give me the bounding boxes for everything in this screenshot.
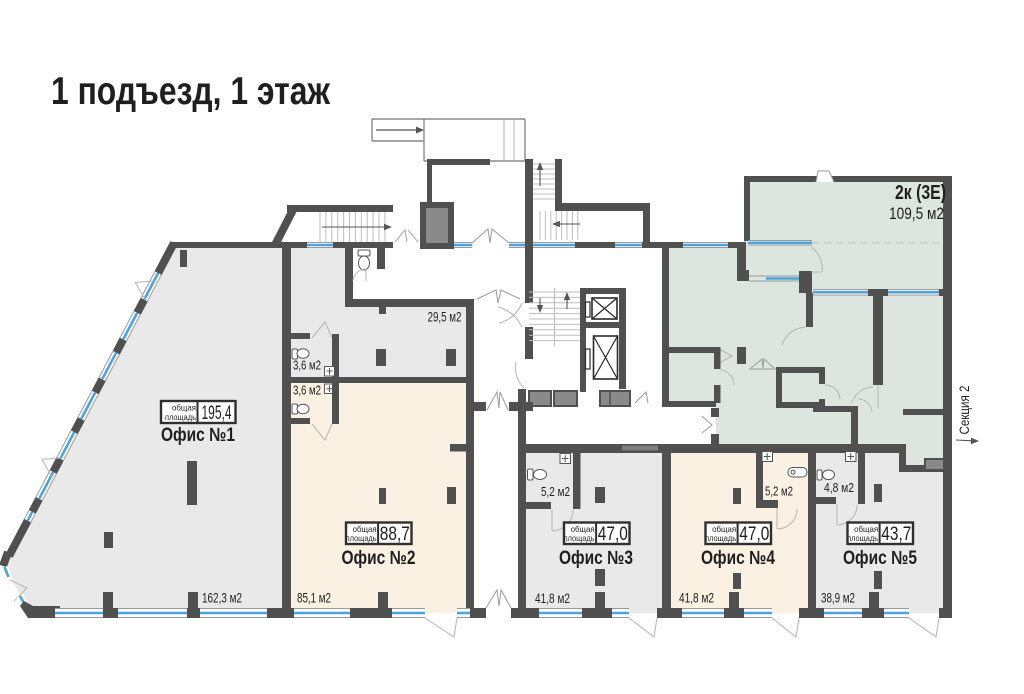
svg-text:3,6 м2: 3,6 м2: [293, 359, 321, 373]
svg-text:5,2 м2: 5,2 м2: [765, 484, 793, 499]
svg-text:площадь: площадь: [847, 533, 878, 543]
svg-text:площадь: площадь: [705, 533, 736, 543]
svg-text:Офис №4: Офис №4: [701, 548, 775, 569]
svg-text:Офис №1: Офис №1: [161, 425, 235, 446]
svg-text:41,8 м2: 41,8 м2: [535, 590, 570, 606]
svg-text:162,3 м2: 162,3 м2: [202, 590, 242, 606]
svg-text:2к (3Е): 2к (3Е): [895, 182, 946, 204]
svg-text:195,4: 195,4: [202, 403, 232, 424]
svg-text:Офис №5: Офис №5: [843, 548, 917, 569]
svg-text:5,2 м2: 5,2 м2: [541, 484, 570, 499]
svg-text:1 подъезд, 1 этаж: 1 подъезд, 1 этаж: [51, 70, 331, 113]
svg-text:85,1 м2: 85,1 м2: [297, 590, 331, 606]
svg-text:площадь: площадь: [564, 533, 595, 543]
svg-text:47,0: 47,0: [739, 524, 769, 545]
svg-text:4,8 м2: 4,8 м2: [824, 480, 854, 495]
svg-text:109,5 м2: 109,5 м2: [889, 204, 944, 223]
svg-text:88,7: 88,7: [380, 524, 410, 545]
svg-text:29,5 м2: 29,5 м2: [428, 309, 462, 325]
svg-text:41,8 м2: 41,8 м2: [679, 590, 714, 606]
svg-text:43,7: 43,7: [881, 524, 911, 545]
svg-text:47,0: 47,0: [598, 524, 628, 545]
svg-text:38,9 м2: 38,9 м2: [821, 590, 855, 606]
svg-text:Офис №3: Офис №3: [559, 548, 633, 569]
svg-text:площадь: площадь: [346, 533, 377, 543]
svg-text:Офис №2: Офис №2: [342, 548, 416, 569]
svg-text:площадь: площадь: [165, 412, 196, 422]
svg-text:3,6 м2: 3,6 м2: [293, 384, 321, 398]
svg-text:Секция 2: Секция 2: [957, 386, 972, 435]
